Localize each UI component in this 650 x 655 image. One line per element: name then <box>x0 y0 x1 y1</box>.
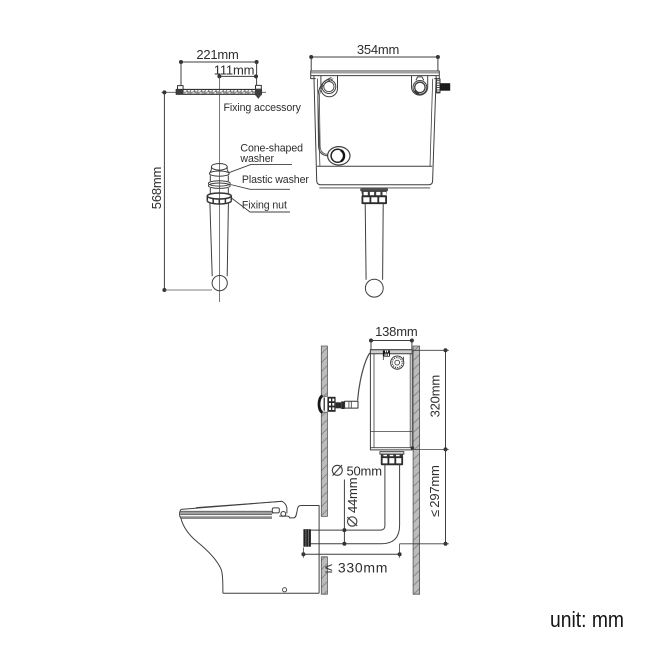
svg-text:Fixing accessory: Fixing accessory <box>224 102 302 114</box>
svg-text:320mm: 320mm <box>428 375 443 417</box>
svg-text:138mm: 138mm <box>375 324 417 339</box>
svg-text:221mm: 221mm <box>196 47 238 62</box>
svg-text:50mm: 50mm <box>347 464 382 479</box>
svg-text:568mm: 568mm <box>149 167 164 209</box>
svg-text:Fixing nut: Fixing nut <box>242 200 287 212</box>
svg-text:354mm: 354mm <box>357 42 399 57</box>
svg-text:washer: washer <box>239 153 274 165</box>
svg-text:≤ 330mm: ≤ 330mm <box>325 560 388 576</box>
svg-text:44mm: 44mm <box>345 478 360 513</box>
svg-text:unit: mm: unit: mm <box>550 607 624 632</box>
svg-text:Plastic washer: Plastic washer <box>242 174 309 186</box>
svg-text:≤ 297mm: ≤ 297mm <box>427 465 442 517</box>
